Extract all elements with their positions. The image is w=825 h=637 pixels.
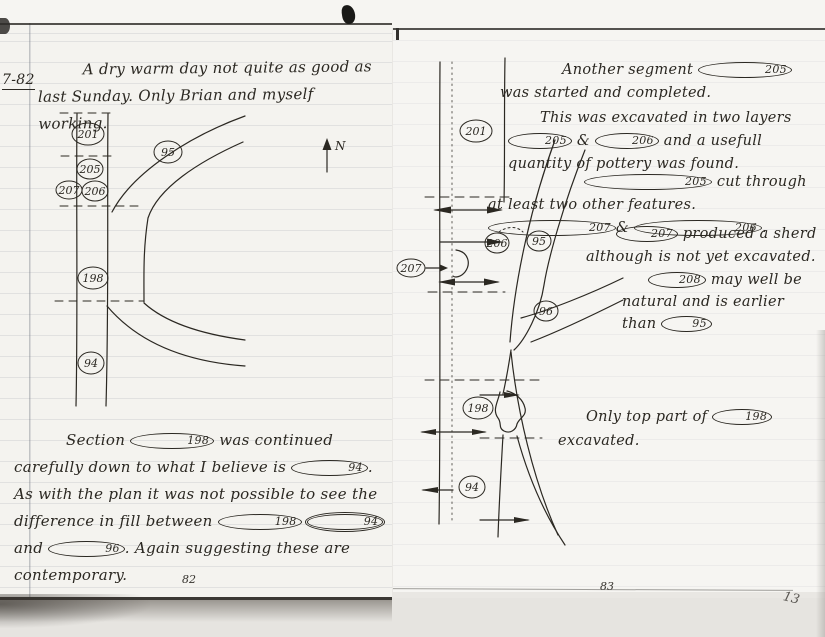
context-number: 198 [712,409,772,425]
context-circle-206: 206 [82,181,108,201]
right-edge-shadow [816,330,825,637]
context-number: 94 [291,460,368,476]
context-number: 96 [48,541,125,557]
svg-text:201: 201 [77,128,99,141]
svg-text:206: 206 [486,237,508,250]
section-note: Section 198 was continued carefully down… [14,427,386,589]
svg-text:95: 95 [161,146,175,159]
context-circle-95: 95 [527,231,551,251]
left-corner-shadow [0,594,150,628]
scan-smudge [0,18,10,34]
context-circle-207: 207 [56,181,82,199]
context-number: 208 [648,272,706,288]
context-circle-201: 201 [460,120,492,142]
context-number: 198 [218,514,302,530]
svg-text:96: 96 [539,305,553,318]
feature-207-bump [453,250,468,277]
context-circle-206: 206 [485,233,509,253]
note-natural: 208 may well be natural and is earlier t… [622,269,808,335]
context-circle-94: 94 [459,476,485,498]
svg-text:N: N [334,139,346,153]
context-number: 205 [698,62,792,78]
svg-text:206: 206 [84,185,106,198]
right-plan-diagram: 201 207 206 95 96 198 94 [395,50,645,550]
svg-text:198: 198 [83,272,104,285]
context-number: 198 [130,433,214,449]
context-circle-201: 201 [72,123,104,145]
context-number: 94 [307,514,384,530]
page-number-right: 83 [600,580,614,593]
context-circle-205: 205 [77,159,103,179]
left-plan-diagram: 201 205 207 206 198 94 95 N [40,100,340,420]
ditch-95-curves [107,116,245,366]
context-circle-94: 94 [78,352,104,374]
section-tick-marks [420,207,530,524]
context-number: 95 [661,316,712,332]
feature-198-blob [495,391,565,545]
svg-text:207: 207 [58,184,80,197]
svg-text:94: 94 [465,481,479,494]
svg-text:205: 205 [79,163,101,176]
ditch-96-curves [521,278,623,342]
svg-text:95: 95 [532,235,546,248]
svg-text:207: 207 [400,262,422,275]
entry-date: 7-82 [2,72,35,90]
svg-text:94: 94 [84,357,98,370]
context-circle-198: 198 [463,397,493,419]
context-circle-198: 198 [78,267,108,289]
page-number-left: 82 [182,573,196,586]
svg-text:198: 198 [468,402,489,415]
svg-text:201: 201 [465,125,487,138]
context-circle-95: 95 [154,141,182,163]
page-corner-tick [396,28,399,40]
notebook-scan: 7-82 A dry warm day not quite as good as… [0,0,825,637]
